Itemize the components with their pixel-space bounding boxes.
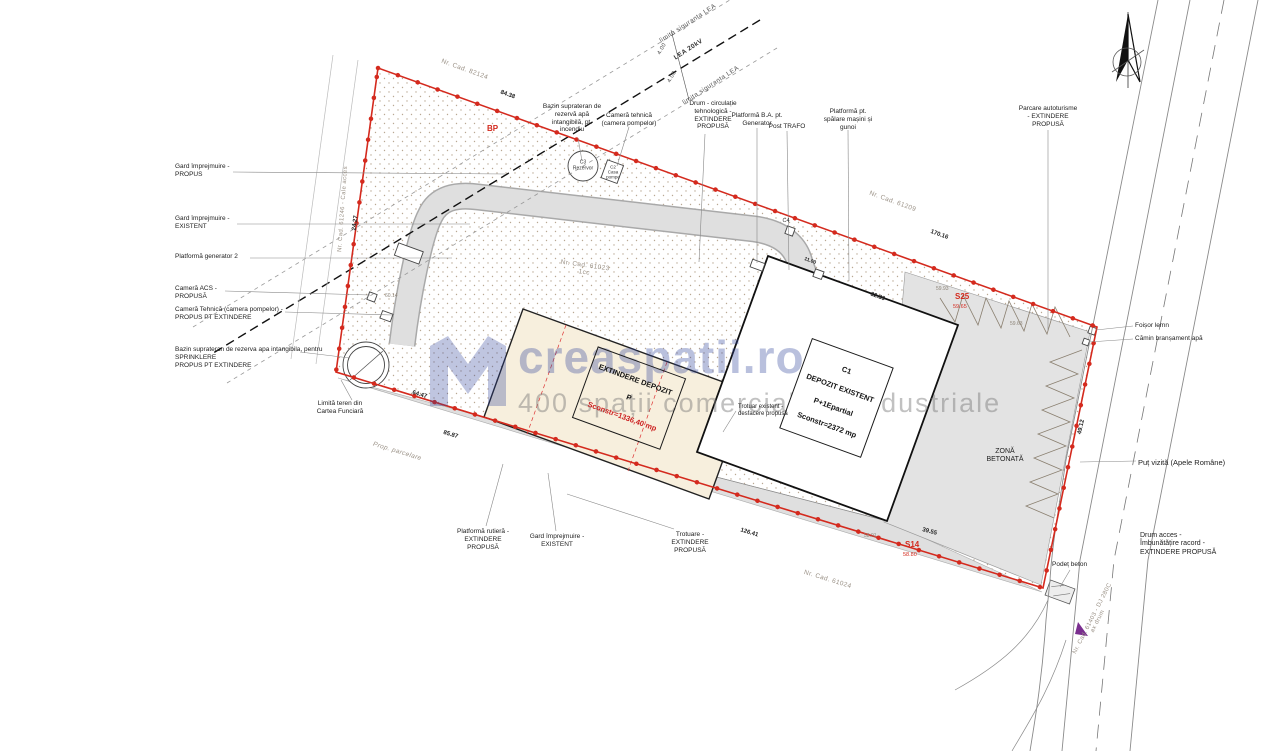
label-gard-imprejmuire-existent: Gard împrejmuire - EXISTENT <box>175 215 230 231</box>
label-platforma-spalare: Platformă pt. spălare mașini și gunoi <box>824 108 872 131</box>
road-centerline <box>1096 0 1224 751</box>
label-camin-bransament: Cămin branșament apă <box>1135 335 1203 343</box>
spot-elevation: 58.91 <box>864 533 877 539</box>
label-limita-teren: Limită teren din Cartea Funciară <box>305 400 375 416</box>
c3-rezervor-label: C3 Rezervor <box>573 161 593 172</box>
label-drum-acces: Drum acces - Îmbunătățire racord - EXTIN… <box>1140 532 1216 557</box>
label-camera-tehnica-pompe: Cameră tehnică (camera pompelor) <box>602 112 657 128</box>
label-zona-betonata: ZONĂ BETONATĂ <box>986 448 1023 465</box>
marker-bp: BP <box>487 124 498 133</box>
label-camera-tehnica-extindere: Cameră Tehnică (camera pompelor) - PROPU… <box>175 306 283 322</box>
label-foisor-lemn: Foișor lemn <box>1135 322 1169 330</box>
spot-elevation: 59.63 <box>1010 321 1023 327</box>
c4-label: C4 <box>782 218 789 224</box>
label-platforma-generator-2: Platformă generator 2 <box>175 253 238 261</box>
podet-beton <box>1045 580 1088 636</box>
c2-casa-pompe-label: C2 Casa pompe <box>606 166 620 181</box>
label-gard-existent-bottom: Gard împrejmuire - EXISTENT <box>530 533 585 549</box>
label-podet-beton: Podeț beton <box>1052 561 1087 569</box>
label-platforma-rutiera: Platformă rutieră - EXTINDERE PROPUSĂ <box>457 528 509 551</box>
label-trotuare-extindere: Trotuare - EXTINDERE PROPUSĂ <box>671 531 708 554</box>
label-put-vizita: Puț vizită (Apele Române) <box>1138 458 1225 467</box>
label-gard-imprejmuire-propus: Gard împrejmuire - PROPUS <box>175 163 230 179</box>
label-bazin-incendiu: Bazin suprateran de rezervă apă intangib… <box>543 103 601 134</box>
north-arrow-icon <box>1112 12 1144 88</box>
marker-s25-elevation: 59.65 <box>953 304 967 310</box>
marker-s14: S14 <box>905 540 919 549</box>
label-drum-tehnologic: Drum - circulație tehnologică - EXTINDER… <box>689 100 736 131</box>
label-camera-acs: Cameră ACS - PROPUSĂ <box>175 285 217 301</box>
label-bazin-sprinklere: Bazin suprateran de rezerva apa intangib… <box>175 346 322 369</box>
label-post-trafo: Post TRAFO <box>769 123 806 131</box>
label-trotuar-existent: Trotuar existent - desfacere propusă <box>738 404 788 418</box>
marker-s14-elevation: 58.80 <box>903 552 917 558</box>
label-parcare-autoturisme: Parcare autoturisme - EXTINDERE PROPUSĂ <box>1019 105 1078 128</box>
site-plan-page: creaspatii.ro 400 spații comerciale și i… <box>0 0 1280 751</box>
spot-elevation: 59.93 <box>936 286 949 292</box>
spot-elevation: 60.14 <box>385 293 398 299</box>
marker-s25: S25 <box>955 292 969 301</box>
